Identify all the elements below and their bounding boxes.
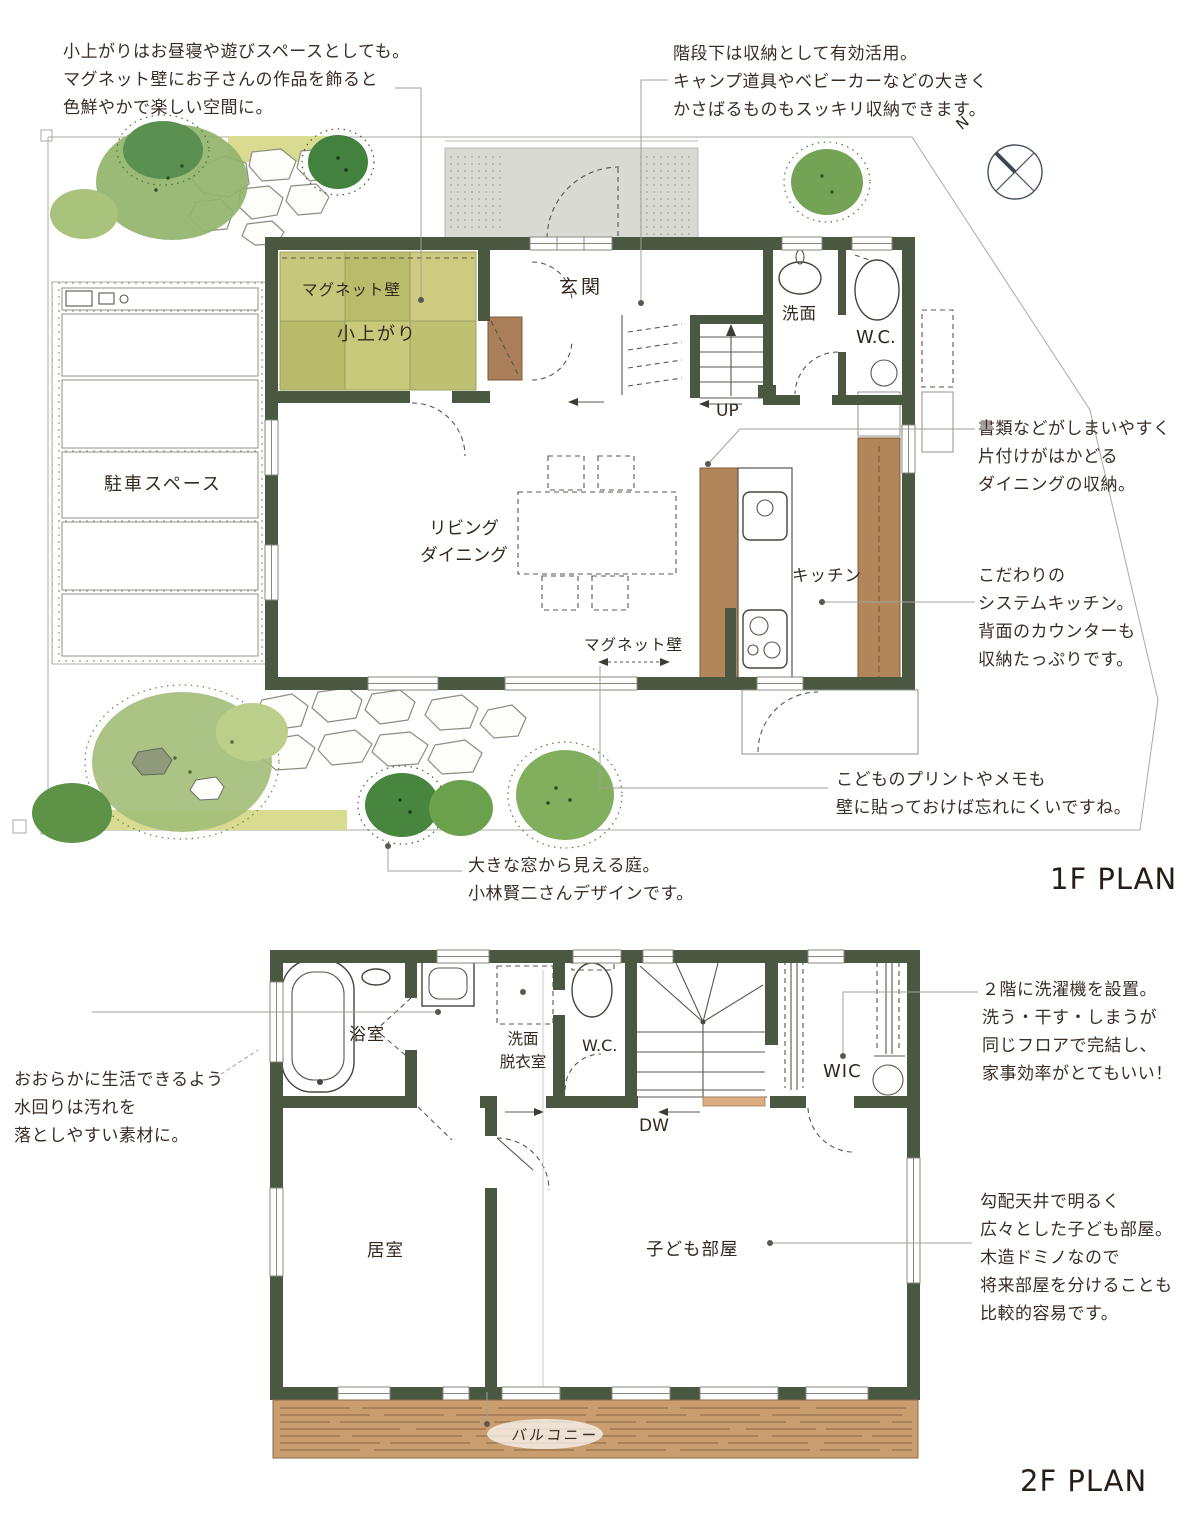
note-dining-storage: 書類などがしまいやすく 片付けがはかどる ダイニングの収納。 bbox=[978, 415, 1171, 499]
note-line: 収納たっぷりです。 bbox=[978, 646, 1136, 674]
label-senmen-datsui: 洗面 脱衣室 bbox=[488, 1028, 558, 1074]
label-magnet-wall-2: マグネット壁 bbox=[584, 633, 683, 655]
note-line: キャンプ道具やベビーカーなどの大きく bbox=[673, 68, 988, 96]
note-line: 落としやすい素材に。 bbox=[14, 1122, 224, 1150]
note-line: 比較的容易です。 bbox=[980, 1300, 1173, 1328]
floor-plan-page: 小上がりはお昼寝や遊びスペースとしても。 マグネット壁にお子さんの作品を飾ると … bbox=[0, 0, 1200, 1530]
label-wic: WIC bbox=[823, 1061, 862, 1082]
label-magnet-wall: マグネット壁 bbox=[302, 278, 401, 300]
note-line: 色鮮やかで楽しい空間に。 bbox=[63, 94, 410, 122]
note-kids-room: 勾配天井で明るく 広々とした子ども部屋。 木造ドミノなので 将来部屋を分けること… bbox=[980, 1188, 1173, 1328]
label-datsui-line: 脱衣室 bbox=[488, 1051, 558, 1074]
note-line: 小上がりはお昼寝や遊びスペースとしても。 bbox=[63, 38, 410, 66]
label-up: UP bbox=[716, 401, 739, 421]
note-line: 書類などがしまいやすく bbox=[978, 415, 1171, 443]
note-line: 勾配天井で明るく bbox=[980, 1188, 1173, 1216]
note-stairs-storage: 階段下は収納として有効活用。 キャンプ道具やベビーカーなどの大きく かさばるもの… bbox=[673, 40, 988, 124]
label-koagari: 小上がり bbox=[337, 320, 417, 346]
label-senmen-line: 洗面 bbox=[488, 1028, 558, 1051]
note-line: こだわりの bbox=[978, 562, 1136, 590]
note-line: システムキッチン。 bbox=[978, 590, 1136, 618]
note-line: 木造ドミノなので bbox=[980, 1244, 1173, 1272]
compass-icon bbox=[988, 145, 1042, 199]
label-dining-line: ダイニング bbox=[412, 543, 516, 570]
note-line: 家事効率がとてもいい！ bbox=[982, 1060, 1173, 1088]
label-wc-2f: W.C. bbox=[582, 1036, 617, 1055]
garden-south bbox=[32, 685, 622, 848]
title-2f-plan: 2F PLAN bbox=[1020, 1464, 1147, 1498]
label-bedroom: 居室 bbox=[367, 1237, 404, 1262]
label-kids-room: 子ども部屋 bbox=[646, 1236, 739, 1261]
label-wc-1f: W.C. bbox=[856, 327, 896, 348]
label-balcony: バルコニー bbox=[511, 1424, 601, 1445]
note-line: 水回りは汚れを bbox=[14, 1094, 224, 1122]
note-line: 階段下は収納として有効活用。 bbox=[673, 40, 988, 68]
label-dw: DW bbox=[639, 1116, 669, 1136]
note-line: 背面のカウンターも bbox=[978, 618, 1136, 646]
note-koagari: 小上がりはお昼寝や遊びスペースとしても。 マグネット壁にお子さんの作品を飾ると … bbox=[63, 38, 410, 122]
note-line: 片付けがはかどる bbox=[978, 443, 1171, 471]
note-line: こどものプリントやメモも bbox=[836, 766, 1131, 794]
label-living-line: リビング bbox=[412, 516, 516, 543]
entrance-approach bbox=[445, 141, 698, 240]
label-living-dining: リビング ダイニング bbox=[412, 516, 516, 570]
note-line: ダイニングの収納。 bbox=[978, 471, 1171, 499]
note-line: おおらかに生活できるよう bbox=[14, 1066, 224, 1094]
note-line: 将来部屋を分けることも bbox=[980, 1272, 1173, 1300]
note-system-kitchen: こだわりの システムキッチン。 背面のカウンターも 収納たっぷりです。 bbox=[978, 562, 1136, 674]
floor1-house bbox=[265, 237, 953, 754]
label-bathroom: 浴室 bbox=[349, 1020, 385, 1045]
note-line: 壁に貼っておけば忘れにくいですね。 bbox=[836, 794, 1131, 822]
note-magnet-wall: こどものプリントやメモも 壁に貼っておけば忘れにくいですね。 bbox=[836, 766, 1131, 822]
note-line: 小林賢二さんデザインです。 bbox=[468, 880, 694, 908]
note-line: ２階に洗濯機を設置。 bbox=[982, 976, 1173, 1004]
note-line: 大きな窓から見える庭。 bbox=[468, 852, 694, 880]
note-line: 同じフロアで完結し、 bbox=[982, 1032, 1173, 1060]
label-genkan: 玄関 bbox=[559, 272, 603, 299]
note-laundry: ２階に洗濯機を設置。 洗う・干す・しまうが 同じフロアで完結し、 家事効率がとて… bbox=[982, 976, 1173, 1088]
label-kitchen: キッチン bbox=[792, 562, 862, 586]
note-water: おおらかに生活できるよう 水回りは汚れを 落としやすい素材に。 bbox=[14, 1066, 224, 1150]
note-line: かさばるものもスッキリ収納できます。 bbox=[673, 96, 988, 124]
note-garden: 大きな窓から見える庭。 小林賢二さんデザインです。 bbox=[468, 852, 694, 908]
note-line: マグネット壁にお子さんの作品を飾ると bbox=[63, 66, 410, 94]
note-line: 広々とした子ども部屋。 bbox=[980, 1216, 1173, 1244]
label-senmen-1f: 洗面 bbox=[782, 300, 817, 324]
note-line: 洗う・干す・しまうが bbox=[982, 1004, 1173, 1032]
title-1f-plan: 1F PLAN bbox=[1050, 862, 1177, 896]
label-parking: 駐車スペース bbox=[104, 470, 222, 496]
